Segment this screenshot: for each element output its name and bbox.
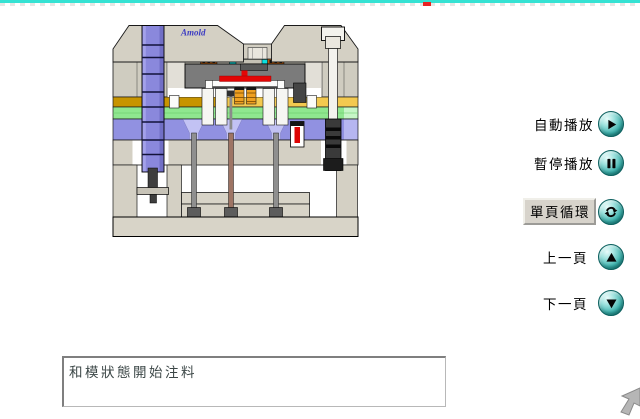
cursor-graphic (610, 386, 640, 419)
status-textbox[interactable]: 和模狀態開始注料 (62, 356, 446, 407)
loop-icon[interactable] (598, 199, 624, 225)
next-page-label: 下一頁 (543, 293, 598, 313)
pause-button[interactable]: 暫停播放 (534, 150, 624, 176)
core-hanger-block (294, 83, 307, 103)
autoplay-label: 自動播放 (534, 114, 598, 134)
single-page-loop-label: 單頁循環 (523, 198, 596, 225)
autoplay-button[interactable]: 自動播放 (534, 111, 624, 137)
previous-page-label: 上一頁 (543, 247, 598, 267)
base-plate (113, 217, 358, 237)
spring-left (235, 87, 245, 104)
next-page-button[interactable]: 下一頁 (543, 290, 624, 316)
injection-column (137, 26, 169, 204)
down-arrow-icon[interactable] (598, 290, 624, 316)
stop-pin-right (307, 96, 317, 109)
previous-page-button[interactable]: 上一頁 (543, 244, 624, 270)
up-arrow-icon[interactable] (598, 244, 624, 270)
single-page-loop-button[interactable]: 單頁循環 (523, 198, 624, 225)
pause-icon[interactable] (598, 150, 624, 176)
logo-text: Amold (180, 28, 206, 38)
column-foot (148, 168, 158, 190)
pause-label: 暫停播放 (534, 153, 598, 173)
stop-pin-left (170, 96, 180, 109)
limit-switch (291, 122, 305, 148)
status-text: 和模狀態開始注料 (69, 365, 197, 380)
sprue-bushing (244, 44, 272, 59)
play-icon[interactable] (598, 111, 624, 137)
spring-right (247, 87, 257, 104)
